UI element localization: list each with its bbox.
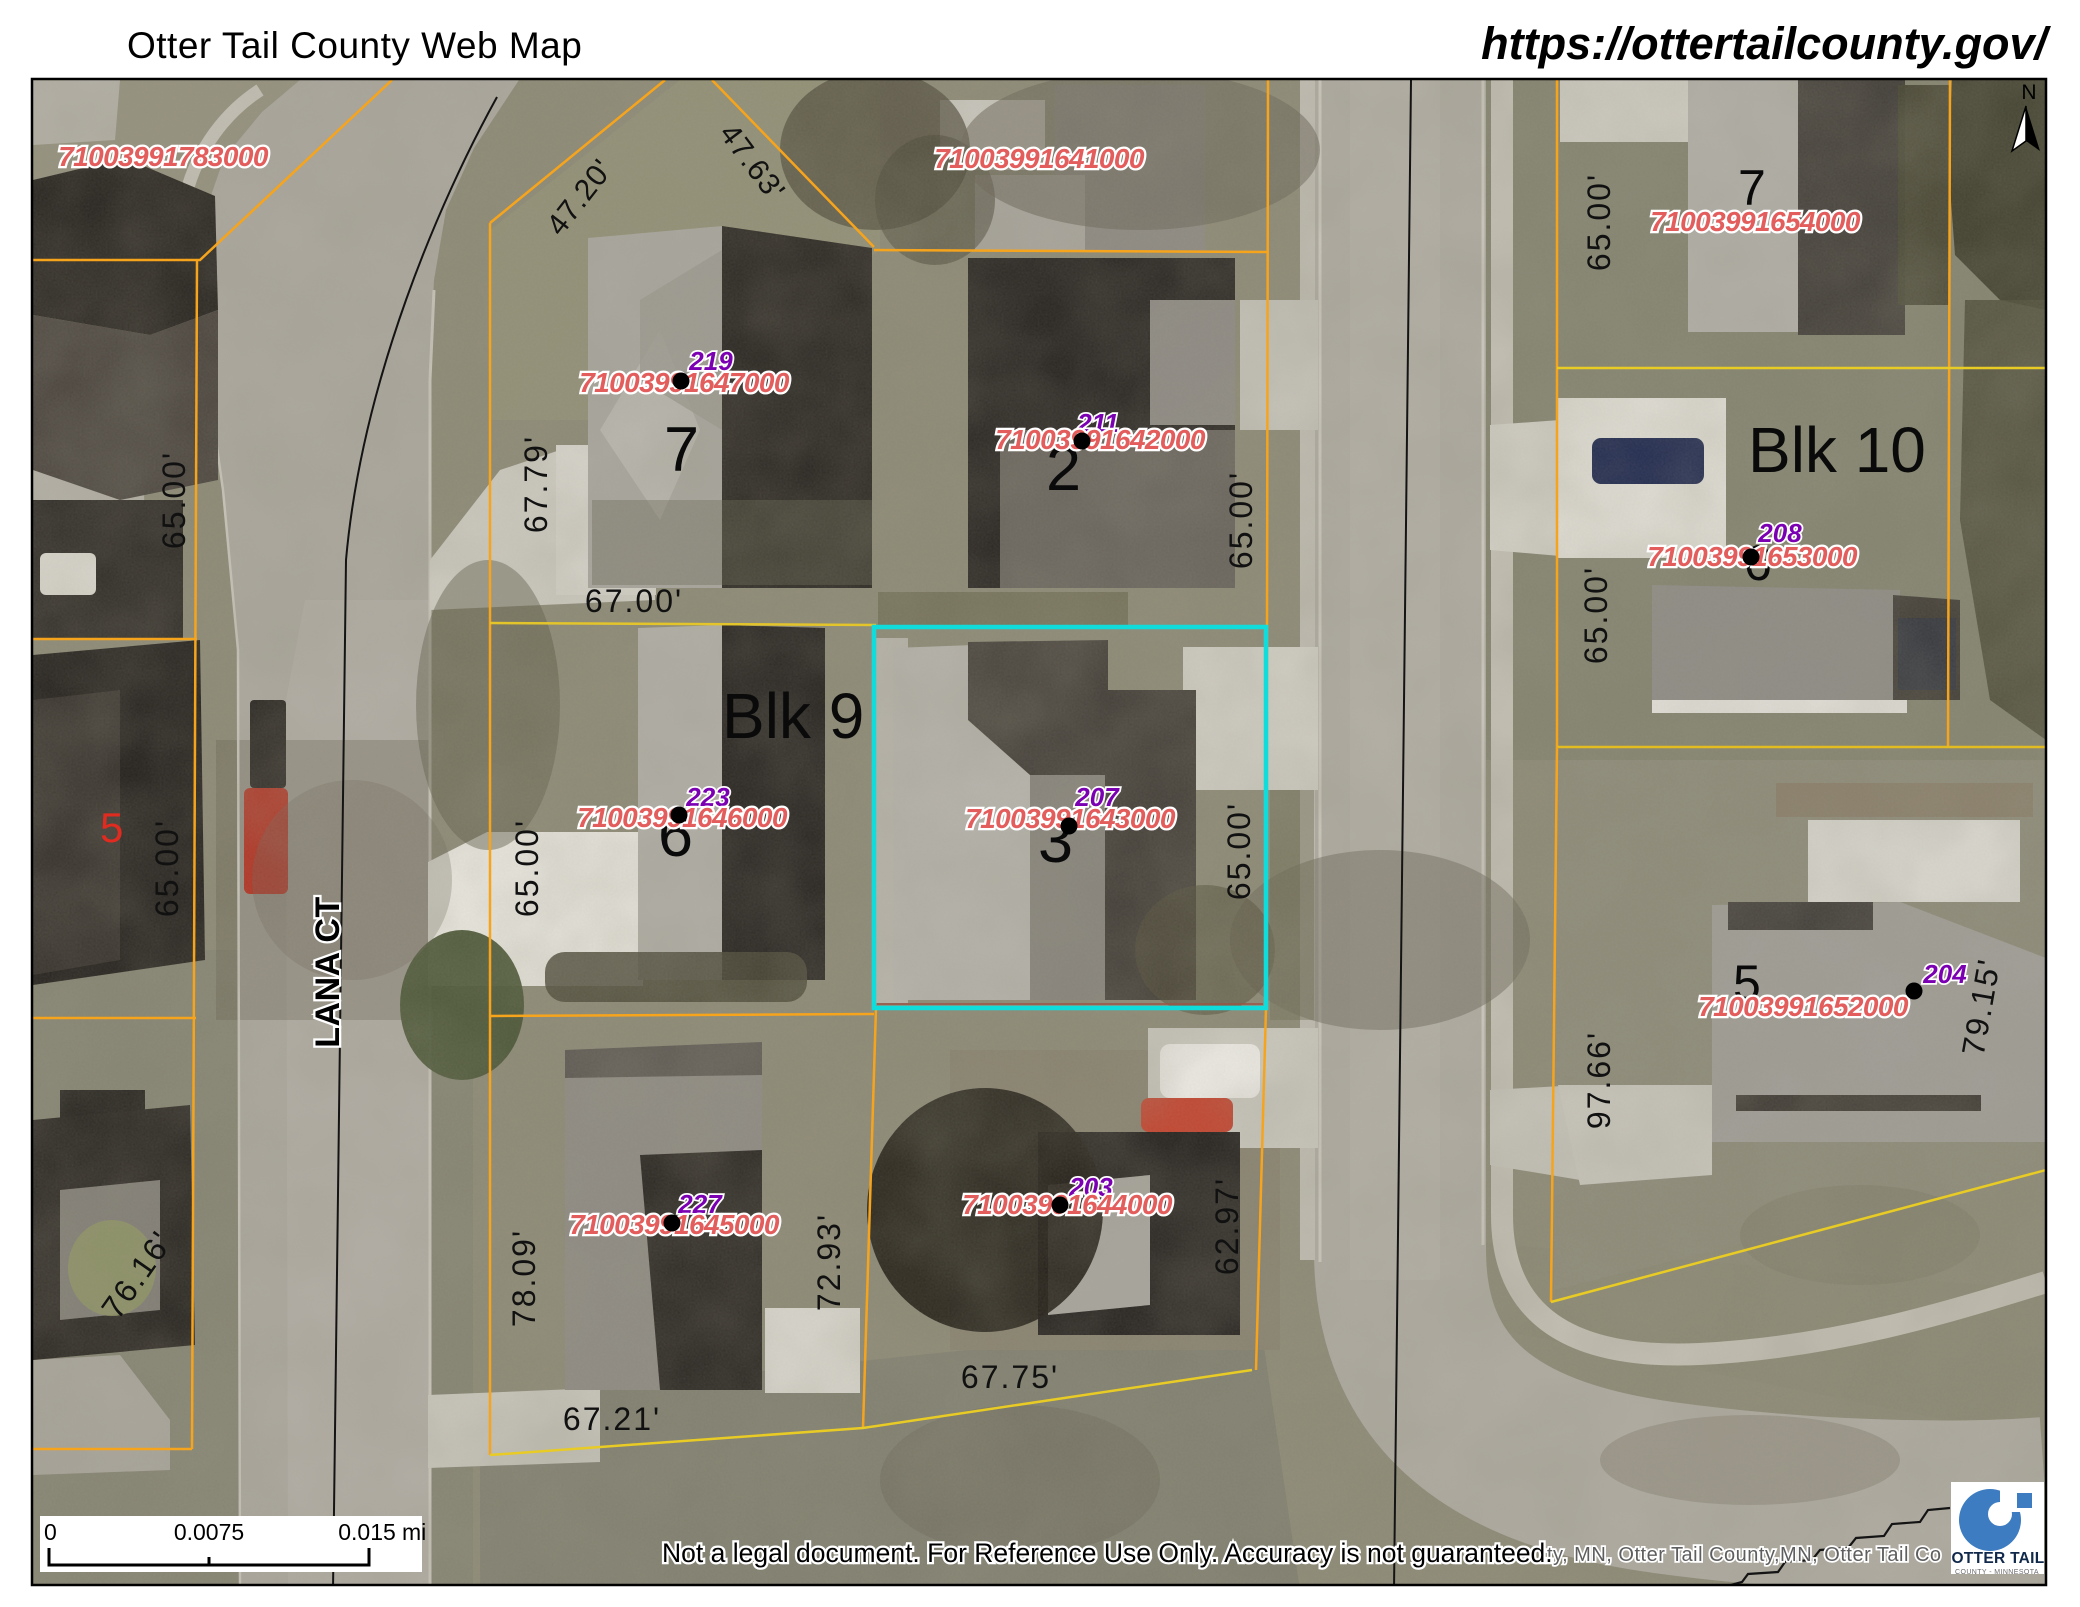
svg-text:Not a legal document. For Refe: Not a legal document. For Reference Use … <box>662 1538 1553 1568</box>
svg-text:67.75': 67.75' <box>961 1359 1059 1395</box>
svg-text:65.00': 65.00' <box>1581 173 1617 271</box>
svg-text:0: 0 <box>44 1519 57 1545</box>
svg-text:97.66': 97.66' <box>1581 1031 1617 1129</box>
svg-text:65.00': 65.00' <box>1221 802 1257 900</box>
svg-text:65.00': 65.00' <box>509 819 545 917</box>
svg-text:0.015: 0.015 <box>338 1519 396 1545</box>
svg-text:OTTER TAIL: OTTER TAIL <box>1951 1550 2044 1567</box>
svg-text:0.0075: 0.0075 <box>174 1519 244 1545</box>
svg-text:65.00': 65.00' <box>1578 566 1614 664</box>
svg-text:62.97': 62.97' <box>1209 1177 1245 1275</box>
svg-text:65.00': 65.00' <box>1223 471 1259 569</box>
svg-text:Blk 10: Blk 10 <box>1748 414 1926 486</box>
svg-text:https://ottertailcounty.gov/: https://ottertailcounty.gov/ <box>1481 18 2051 69</box>
svg-text:71003991654000: 71003991654000 <box>1650 206 1861 237</box>
svg-text:5: 5 <box>100 804 123 851</box>
svg-text:71003991652000: 71003991652000 <box>1698 991 1909 1022</box>
svg-text:71003991641000: 71003991641000 <box>934 143 1145 174</box>
svg-text:67.79': 67.79' <box>518 435 554 533</box>
svg-text:65.00': 65.00' <box>149 819 185 917</box>
svg-text:71003991783000: 71003991783000 <box>58 141 269 172</box>
svg-text:N: N <box>2021 81 2036 104</box>
svg-text:7: 7 <box>664 415 699 485</box>
svg-text:mi: mi <box>402 1519 426 1545</box>
svg-text:204: 204 <box>1922 959 1967 989</box>
svg-text:COUNTY - MINNESOTA: COUNTY - MINNESOTA <box>1955 1569 2039 1576</box>
svg-text:71003991642000: 71003991642000 <box>995 424 1206 455</box>
svg-text:78.09': 78.09' <box>506 1229 542 1327</box>
svg-text:72.93': 72.93' <box>811 1213 847 1311</box>
svg-text:65.00': 65.00' <box>156 451 192 549</box>
svg-text:ty, MN, Otter Tail County,MN,: ty, MN, Otter Tail County,MN, Otter Tail… <box>1547 1544 1942 1566</box>
svg-text:Blk 9: Blk 9 <box>722 680 864 752</box>
svg-text:67.21': 67.21' <box>563 1401 661 1437</box>
svg-text:LANA CT: LANA CT <box>309 896 347 1047</box>
svg-text:Otter Tail County Web Map: Otter Tail County Web Map <box>127 25 582 66</box>
svg-text:67.00': 67.00' <box>585 583 683 619</box>
